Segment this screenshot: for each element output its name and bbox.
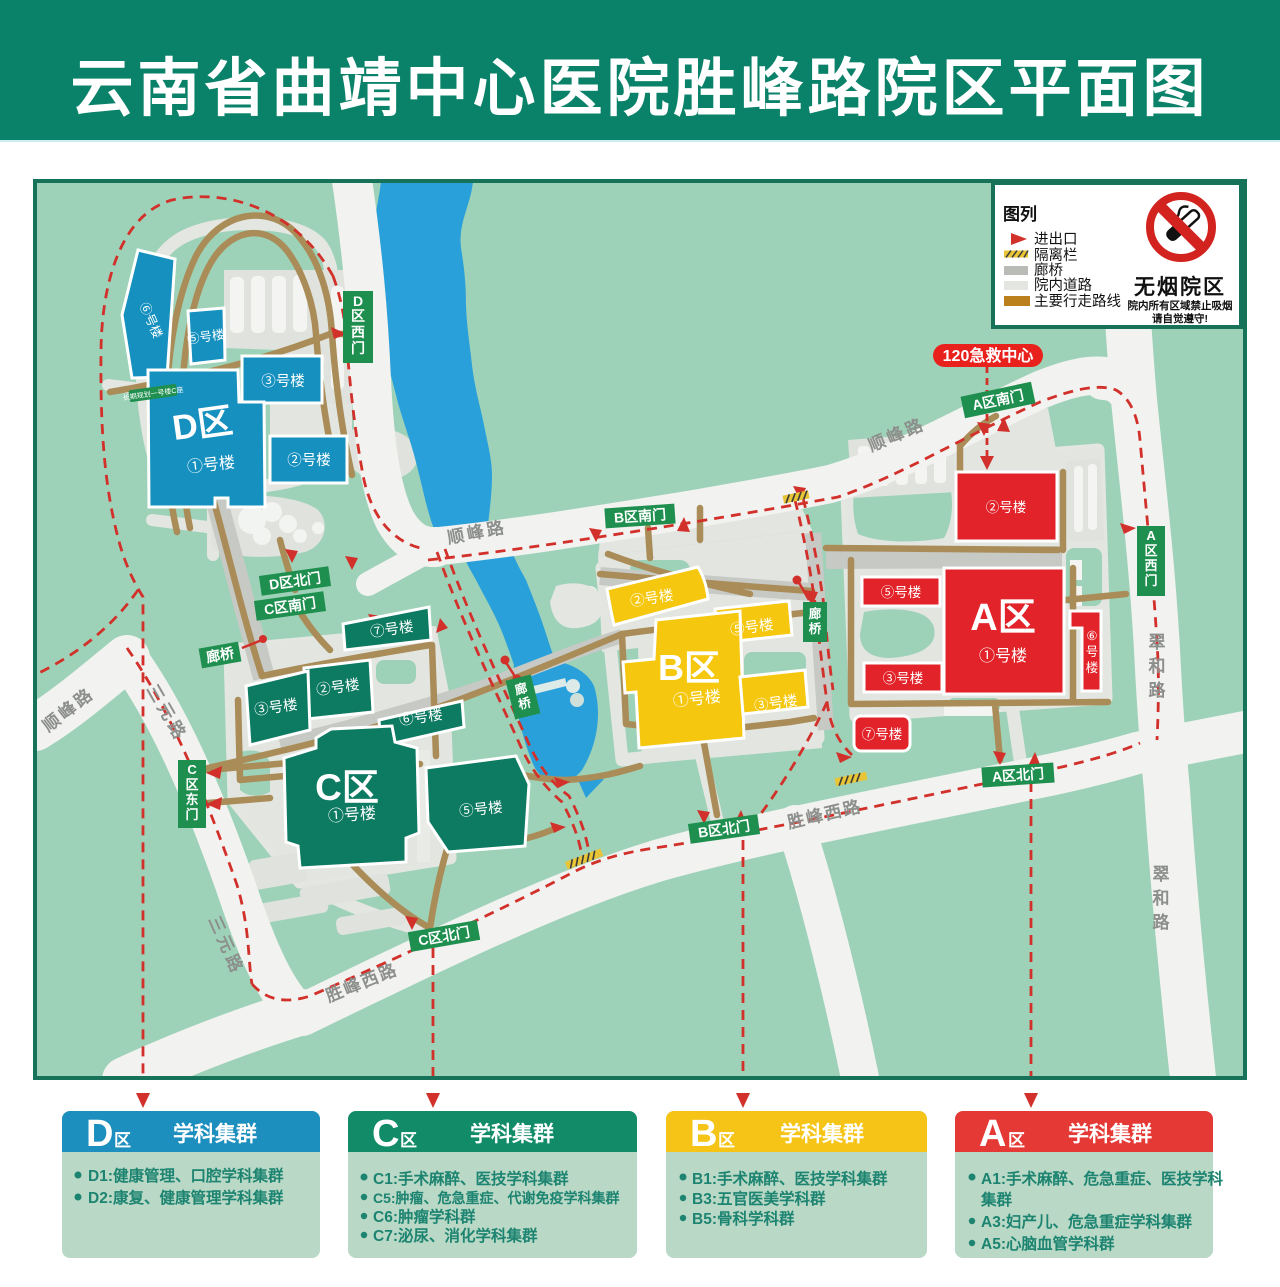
svg-text:A区: A区 xyxy=(970,597,1035,639)
svg-text:区: 区 xyxy=(1008,1131,1025,1150)
svg-text:东: 东 xyxy=(185,792,198,807)
svg-text:学科集群: 学科集群 xyxy=(780,1122,864,1146)
svg-text:学科集群: 学科集群 xyxy=(1068,1122,1152,1146)
svg-text:翠: 翠 xyxy=(1153,865,1170,884)
svg-text:③号楼: ③号楼 xyxy=(883,671,924,686)
svg-text:C: C xyxy=(187,762,197,777)
svg-text:区: 区 xyxy=(185,777,198,792)
svg-text:区: 区 xyxy=(1144,543,1157,558)
svg-text:请自觉遵守!: 请自觉遵守! xyxy=(1152,312,1208,325)
svg-text:②号楼: ②号楼 xyxy=(287,452,331,469)
svg-text:楼: 楼 xyxy=(1086,660,1099,675)
svg-text:学科集群: 学科集群 xyxy=(173,1122,257,1146)
svg-text:B1:手术麻醉、医技学科集群: B1:手术麻醉、医技学科集群 xyxy=(692,1169,888,1188)
svg-text:②号楼: ②号楼 xyxy=(986,500,1027,515)
svg-text:翠: 翠 xyxy=(1149,633,1166,652)
svg-text:门: 门 xyxy=(1144,573,1157,588)
svg-text:⑤号楼: ⑤号楼 xyxy=(881,585,922,600)
svg-text:隔离栏: 隔离栏 xyxy=(1034,247,1078,264)
svg-text:A: A xyxy=(979,1113,1006,1155)
svg-text:无烟院区: 无烟院区 xyxy=(1134,275,1226,299)
svg-text:①号楼: ①号楼 xyxy=(979,647,1027,665)
svg-text:区: 区 xyxy=(114,1131,131,1150)
svg-text:号: 号 xyxy=(1086,645,1099,659)
svg-text:A5:心脑血管学科群: A5:心脑血管学科群 xyxy=(981,1234,1115,1253)
svg-text:学科集群: 学科集群 xyxy=(470,1122,554,1146)
svg-text:主要行走路线: 主要行走路线 xyxy=(1034,293,1121,310)
svg-text:廊: 廊 xyxy=(809,606,822,621)
svg-text:区: 区 xyxy=(400,1131,417,1150)
svg-text:图列: 图列 xyxy=(1003,204,1037,224)
svg-text:西: 西 xyxy=(351,324,365,340)
svg-text:D: D xyxy=(86,1113,113,1155)
svg-text:桥: 桥 xyxy=(809,621,822,636)
svg-text:和: 和 xyxy=(1149,657,1166,676)
svg-text:D2:康复、健康管理学科集群: D2:康复、健康管理学科集群 xyxy=(88,1188,284,1207)
svg-text:D区: D区 xyxy=(170,401,235,448)
svg-text:区: 区 xyxy=(351,308,365,324)
svg-text:西: 西 xyxy=(1144,558,1157,573)
svg-text:集群: 集群 xyxy=(980,1190,1013,1209)
svg-text:B区: B区 xyxy=(658,647,720,688)
svg-text:C5:肿瘤、危急重症、代谢免疫学科集群: C5:肿瘤、危急重症、代谢免疫学科集群 xyxy=(373,1190,620,1206)
svg-text:①号楼: ①号楼 xyxy=(327,804,376,825)
svg-text:⑥: ⑥ xyxy=(1086,629,1097,643)
svg-text:D: D xyxy=(353,293,363,309)
svg-text:C: C xyxy=(372,1113,399,1155)
svg-text:廊桥: 廊桥 xyxy=(1034,262,1063,279)
svg-text:云南省曲靖中心医院胜峰路院区平面图: 云南省曲靖中心医院胜峰路院区平面图 xyxy=(71,54,1210,124)
svg-text:A1:手术麻醉、危急重症、医技学科: A1:手术麻醉、危急重症、医技学科 xyxy=(981,1169,1223,1188)
svg-text:A3:妇产儿、危急重症学科集群: A3:妇产儿、危急重症学科集群 xyxy=(981,1212,1192,1231)
svg-text:③号楼: ③号楼 xyxy=(261,373,305,390)
svg-text:路: 路 xyxy=(1149,680,1167,700)
svg-text:院内道路: 院内道路 xyxy=(1034,277,1092,294)
svg-text:C6:肿瘤学科群: C6:肿瘤学科群 xyxy=(373,1207,476,1226)
svg-text:进出口: 进出口 xyxy=(1034,231,1078,248)
svg-text:120急救中心: 120急救中心 xyxy=(943,346,1034,365)
svg-text:⑦号楼: ⑦号楼 xyxy=(862,727,903,742)
svg-text:门: 门 xyxy=(351,340,365,356)
svg-text:B: B xyxy=(690,1113,717,1155)
svg-text:B5:骨科学科群: B5:骨科学科群 xyxy=(692,1209,795,1228)
svg-text:C1:手术麻醉、医技学科集群: C1:手术麻醉、医技学科集群 xyxy=(373,1169,569,1188)
svg-text:C7:泌尿、消化学科集群: C7:泌尿、消化学科集群 xyxy=(373,1226,538,1245)
svg-text:路: 路 xyxy=(1153,912,1171,932)
svg-text:C区: C区 xyxy=(315,767,379,808)
svg-text:院内所有区域禁止吸烟: 院内所有区域禁止吸烟 xyxy=(1128,299,1233,312)
svg-text:区: 区 xyxy=(718,1131,735,1150)
svg-text:B3:五官医美学科群: B3:五官医美学科群 xyxy=(692,1189,826,1208)
svg-text:门: 门 xyxy=(185,807,198,822)
svg-text:和: 和 xyxy=(1153,889,1170,908)
svg-text:D1:健康管理、口腔学科集群: D1:健康管理、口腔学科集群 xyxy=(88,1166,284,1185)
svg-text:A: A xyxy=(1146,528,1156,543)
